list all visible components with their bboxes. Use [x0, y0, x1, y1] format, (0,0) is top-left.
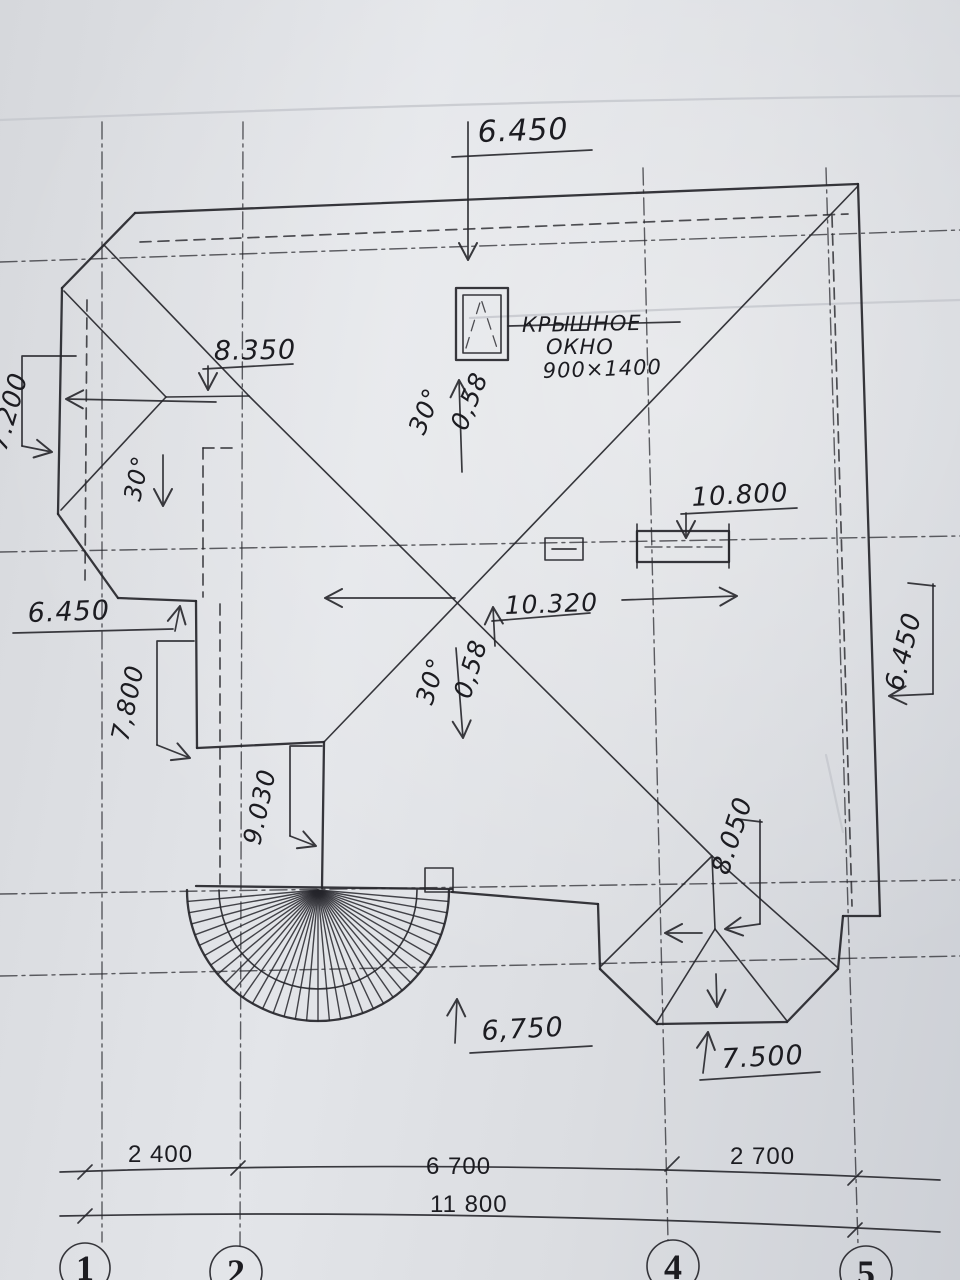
dim-label-chimney-height: 10.800 [691, 478, 789, 513]
dim-label-top-elevation: 6.450 [477, 112, 569, 150]
dim-label-center-ridge: 10.320 [504, 588, 598, 620]
chimney-symbols [545, 524, 729, 568]
roof-hips-ridges [61, 186, 858, 1022]
dim-label-low-eave: 6,750 [481, 1012, 565, 1047]
blueprint-photo: 1 2 4 5 6.450 КРЫШНОЕ ОКНО 900×1400 8.35… [0, 0, 960, 1280]
dimension-leaders [13, 122, 935, 1080]
dim-label-bay-wall: 8.050 [706, 793, 759, 878]
span-label-1-2: 2 400 [128, 1141, 193, 1168]
grid-bubble-4-label: 4 [664, 1247, 682, 1280]
dim-label-ridge-left: 8.350 [214, 335, 297, 367]
angle-label-left: 30° [118, 453, 155, 503]
span-label-total: 11 800 [430, 1191, 508, 1218]
roof-plan-drawing: 1 2 4 5 6.450 КРЫШНОЕ ОКНО 900×1400 8.35… [0, 0, 960, 1280]
angle-label-lower: 30° [410, 654, 452, 708]
angle-label-upper: 30° [403, 384, 448, 439]
dim-label-left-edge: 7.200 [0, 369, 35, 454]
slope-label-upper: 0,58 [445, 368, 494, 434]
dim-label-wing-eave: 6.450 [27, 595, 110, 629]
axis-span-labels: 2 400 6 700 2 700 11 800 [128, 1141, 795, 1218]
dim-label-wing-wall: 7,800 [106, 662, 150, 743]
stair-fan-lines [188, 890, 449, 1021]
grid-bubble-2-label: 2 [227, 1252, 245, 1280]
span-label-2-4: 6 700 [426, 1153, 491, 1180]
roof-window-label-line1: КРЫШНОЕ [522, 311, 642, 337]
span-label-4-5: 2 700 [730, 1143, 795, 1170]
dim-label-right-eave: 6.450 [880, 609, 928, 693]
slope-label-lower: 0,58 [448, 636, 493, 702]
grid-bubble-1-label: 1 [76, 1248, 94, 1280]
grid-bubble-5-label: 5 [857, 1253, 875, 1280]
roof-outline [58, 184, 880, 1024]
grid-bubbles: 1 2 4 5 [60, 1240, 892, 1280]
roof-window-label-line3: 900×1400 [542, 355, 662, 383]
roof-window-label-line2: ОКНО [546, 335, 614, 359]
dim-label-bay-eave: 7.500 [721, 1040, 805, 1075]
dimension-labels: 6.450 КРЫШНОЕ ОКНО 900×1400 8.350 7.200 … [0, 112, 928, 1075]
dim-label-tower-ridge: 9.030 [238, 766, 282, 847]
